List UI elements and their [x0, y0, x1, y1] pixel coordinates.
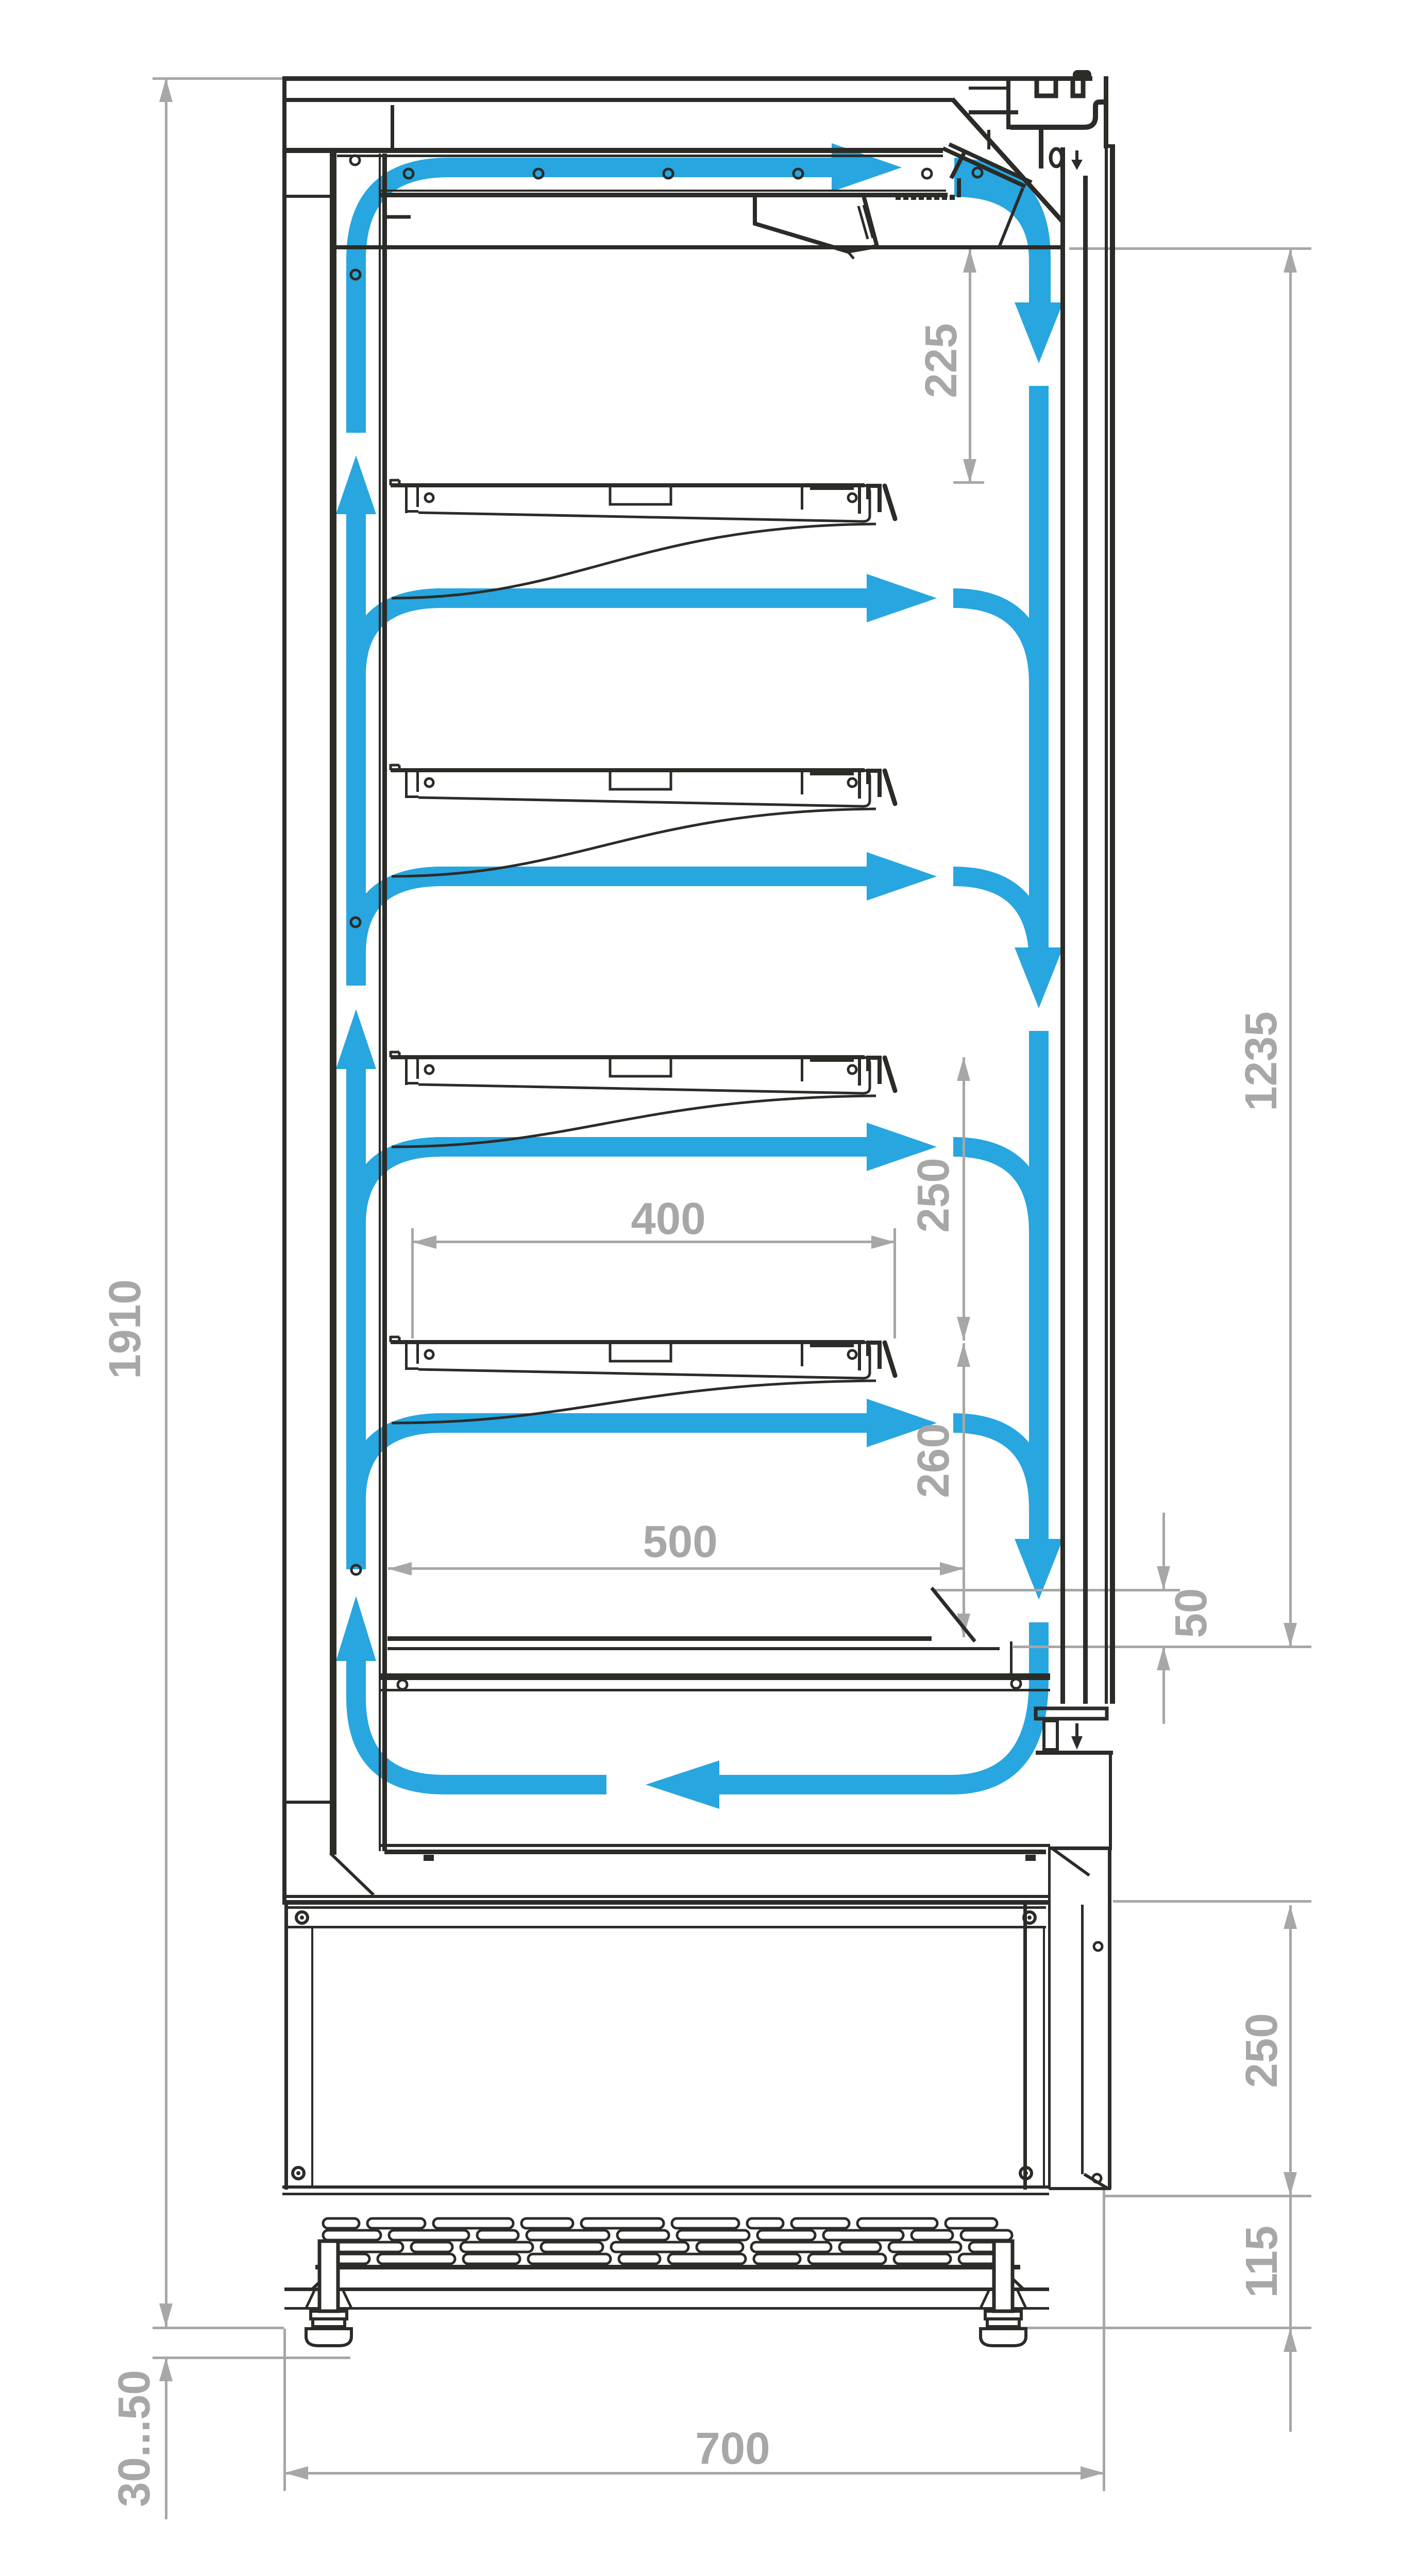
svg-text:115: 115 — [1237, 2226, 1287, 2298]
svg-text:1910: 1910 — [100, 1279, 150, 1379]
svg-text:250: 250 — [908, 1158, 958, 1232]
svg-text:50: 50 — [1166, 1588, 1216, 1638]
svg-text:250: 250 — [1237, 2013, 1287, 2088]
svg-text:260: 260 — [908, 1423, 958, 1498]
svg-text:500: 500 — [643, 1517, 717, 1567]
svg-text:225: 225 — [916, 323, 966, 398]
svg-text:700: 700 — [695, 2424, 770, 2473]
svg-text:1235: 1235 — [1236, 1011, 1286, 1111]
svg-text:30...50: 30...50 — [109, 2370, 159, 2507]
svg-text:400: 400 — [631, 1194, 705, 1244]
